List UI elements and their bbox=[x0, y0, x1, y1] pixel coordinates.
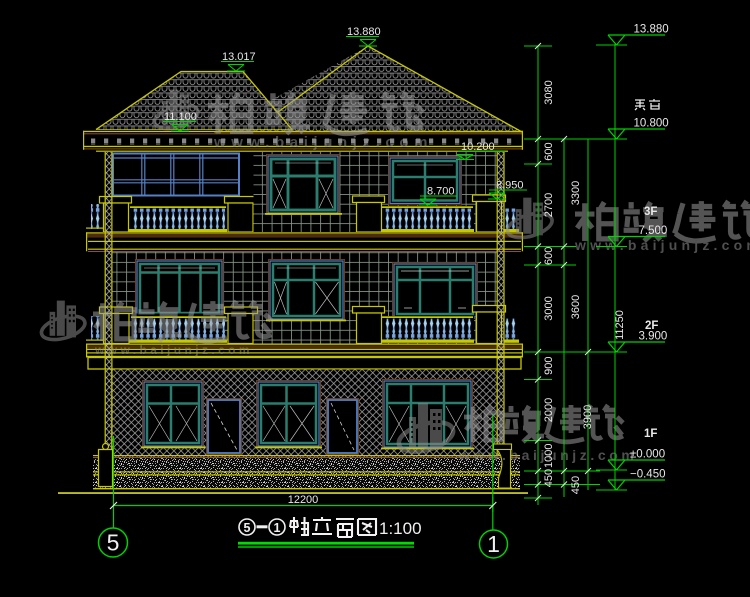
svg-text:1: 1 bbox=[487, 531, 500, 557]
svg-text:3000: 3000 bbox=[543, 296, 555, 320]
svg-text:3900: 3900 bbox=[582, 405, 594, 429]
svg-text:1: 1 bbox=[274, 521, 281, 535]
svg-text:1:100: 1:100 bbox=[379, 519, 422, 538]
svg-text:13.880: 13.880 bbox=[634, 24, 669, 36]
svg-text:10.200: 10.200 bbox=[461, 141, 495, 153]
svg-text:3600: 3600 bbox=[570, 295, 582, 319]
svg-text:450: 450 bbox=[543, 469, 555, 487]
svg-text:2000: 2000 bbox=[543, 398, 555, 422]
svg-text:450: 450 bbox=[570, 476, 582, 494]
svg-text:600: 600 bbox=[543, 142, 555, 160]
svg-text:5: 5 bbox=[107, 530, 120, 556]
svg-text:2F: 2F bbox=[645, 320, 658, 332]
svg-text:3F: 3F bbox=[644, 206, 657, 218]
svg-text:7.500: 7.500 bbox=[639, 225, 668, 237]
svg-text:8.700: 8.700 bbox=[427, 186, 455, 198]
svg-text:±0.000: ±0.000 bbox=[630, 449, 665, 461]
svg-text:8.950: 8.950 bbox=[496, 180, 524, 192]
svg-text:1000: 1000 bbox=[543, 443, 555, 467]
svg-text:900: 900 bbox=[543, 357, 555, 375]
svg-text:11250: 11250 bbox=[614, 310, 626, 340]
svg-text:11.100: 11.100 bbox=[164, 111, 197, 123]
svg-text:www.baijunjz.com: www.baijunjz.com bbox=[574, 237, 750, 253]
svg-text:3080: 3080 bbox=[543, 80, 555, 104]
svg-text:5: 5 bbox=[244, 521, 251, 535]
svg-text:12200: 12200 bbox=[288, 494, 319, 506]
svg-text:3.900: 3.900 bbox=[639, 331, 668, 343]
svg-text:13.017: 13.017 bbox=[222, 51, 256, 63]
svg-text:−0.450: −0.450 bbox=[630, 469, 666, 481]
svg-text:2700: 2700 bbox=[543, 193, 555, 217]
svg-text:13.880: 13.880 bbox=[347, 26, 381, 38]
svg-text:www.baijunjz.com: www.baijunjz.com bbox=[213, 134, 433, 151]
svg-text:600: 600 bbox=[543, 247, 555, 265]
svg-text:3300: 3300 bbox=[570, 181, 582, 205]
svg-text:1F: 1F bbox=[644, 428, 657, 440]
svg-text:www.baijunjz.com: www.baijunjz.com bbox=[94, 343, 253, 357]
svg-text:10.800: 10.800 bbox=[634, 118, 669, 130]
